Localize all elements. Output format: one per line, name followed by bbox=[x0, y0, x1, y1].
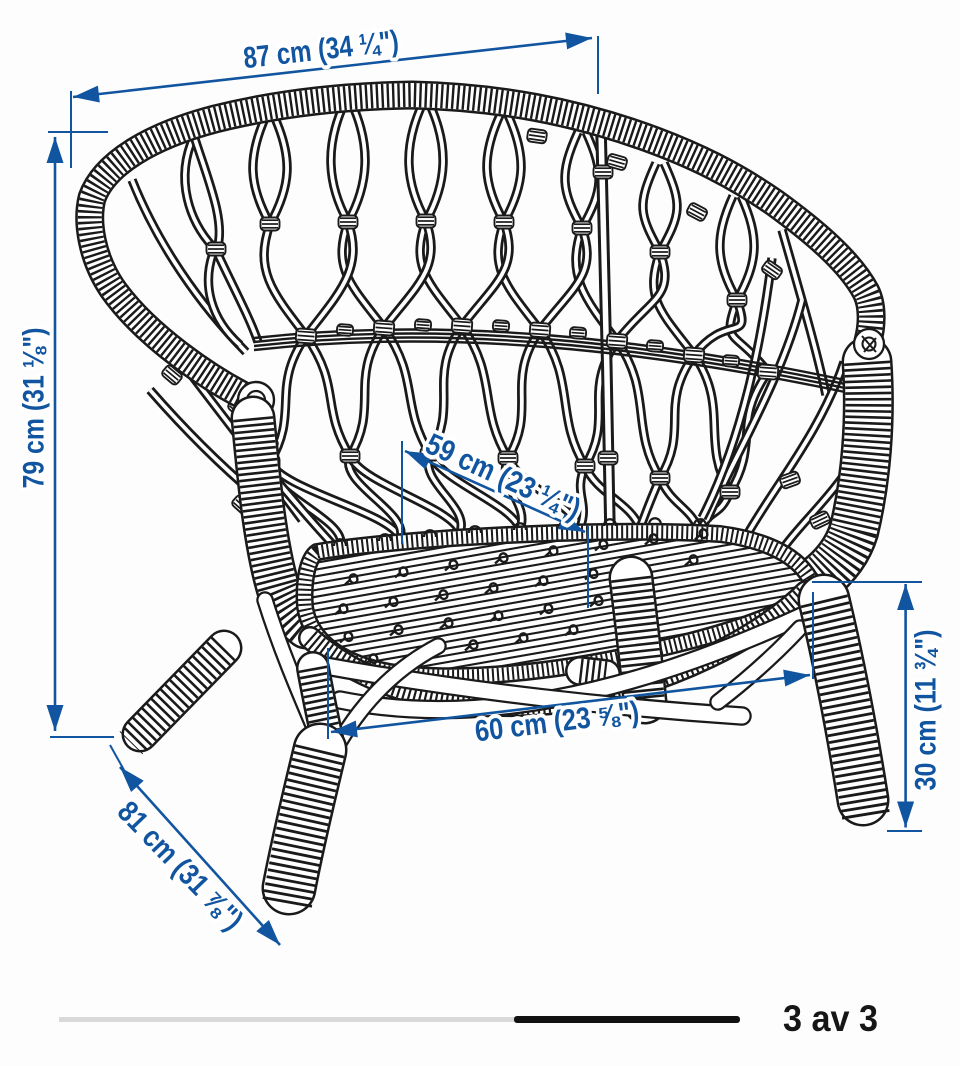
svg-text:3 av 3: 3 av 3 bbox=[783, 998, 878, 1039]
svg-text:79 cm (31 ⅛"): 79 cm (31 ⅛") bbox=[18, 328, 51, 489]
svg-text:30 cm (11 ¾"): 30 cm (11 ¾") bbox=[910, 630, 943, 791]
